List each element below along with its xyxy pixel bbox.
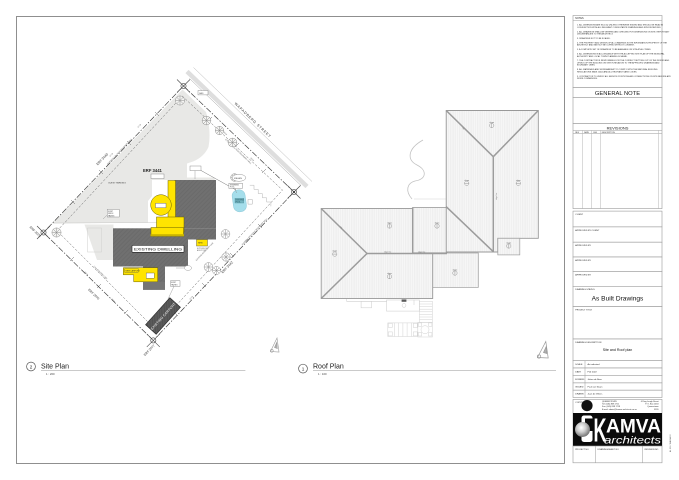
svg-text:DATE: DATE [584, 131, 590, 134]
svg-text:CLIENT: CLIENT [575, 214, 583, 216]
svg-text:Johan de Beer: Johan de Beer [588, 378, 603, 381]
svg-text:APPROVED BY: APPROVED BY [575, 244, 591, 247]
svg-text:As Built Drawings: As Built Drawings [592, 295, 644, 302]
svg-text:POOL: POOL [230, 187, 235, 189]
svg-text:PROJECT TITLE: PROJECT TITLE [575, 310, 592, 312]
svg-text:PAVING: PAVING [108, 214, 115, 217]
svg-text:Juan de Villiers: Juan de Villiers [588, 393, 604, 396]
svg-text:NEW: NEW [198, 243, 203, 245]
svg-text:As indicated: As indicated [588, 363, 601, 366]
svg-text:DISCREPANCIES TO THE ARCHITECT: DISCREPANCIES TO THE ARCHITECT. [577, 33, 614, 36]
svg-text:POOL: POOL [236, 202, 241, 204]
svg-text:SCALE: SCALE [575, 363, 583, 366]
svg-text:APPROVED BY CLIENT: APPROVED BY CLIENT [575, 229, 600, 232]
svg-text:Roof Plan: Roof Plan [313, 363, 344, 370]
svg-text:Feb 2022: Feb 2022 [588, 372, 598, 374]
svg-text:NEW CARPORT: NEW CARPORT [126, 269, 141, 272]
svg-text:GUEST PARKING: GUEST PARKING [108, 182, 126, 185]
svg-text:CONJUNCTION WITH ALL RELEVANT: CONJUNCTION WITH ALL RELEVANT CONSULTANT… [577, 26, 661, 29]
svg-text:1 : 100: 1 : 100 [318, 372, 327, 376]
svg-text:Queenstown: Queenstown [647, 405, 658, 408]
svg-text:ARCHITECT AND MAY NOT BE COPIE: ARCHITECT AND MAY NOT BE COPIED WITHOUT … [577, 44, 635, 47]
svg-text:BOUNDARY LINES.: BOUNDARY LINES. [577, 64, 596, 67]
svg-text:ridge line: ridge line [384, 252, 391, 254]
svg-text:APPROVED BY: APPROVED BY [575, 259, 591, 262]
svg-text:1: 1 [302, 367, 305, 372]
svg-text:REVISIONS: REVISIONS [607, 125, 629, 130]
svg-text:2: 2 [30, 365, 33, 370]
svg-text:PAVING: PAVING [171, 283, 178, 286]
svg-text:Site and Roof plan: Site and Roof plan [603, 348, 633, 352]
svg-text:Paul van Staan: Paul van Staan [588, 385, 604, 388]
svg-text:ERF 3441: ERF 3441 [143, 168, 163, 173]
svg-text:5. A COMPLETE SET OF DRAWINGS: 5. A COMPLETE SET OF DRAWINGS TO BE AVAI… [577, 48, 651, 51]
svg-text:ridge line: ridge line [496, 193, 498, 200]
svg-text:SPA BATH: SPA BATH [234, 177, 243, 180]
svg-text:WORK COMMENCES.: WORK COMMENCES. [577, 78, 598, 80]
svg-text:NOTES: NOTES [575, 17, 584, 20]
svg-text:REVISION NO: REVISION NO [645, 449, 659, 451]
svg-text:DATE: DATE [575, 371, 581, 374]
svg-text:DRAWN: DRAWN [575, 393, 584, 396]
svg-text:ridge line: ridge line [418, 252, 425, 254]
svg-text:architects: architects [604, 435, 662, 447]
svg-text:DRAWING/SHEET NO: DRAWING/SHEET NO [598, 448, 620, 451]
svg-text:E-mail: admin@kamva-architect: E-mail: admin@kamva-architects.co.za [602, 408, 638, 411]
svg-text:AUTHORITY AND LOCAL TOWN PLANN: AUTHORITY AND LOCAL TOWN PLANNING SCHEME… [577, 55, 628, 58]
svg-text:ADDITION: ADDITION [197, 249, 206, 252]
svg-text:RECOMMENDED: RECOMMENDED [575, 379, 584, 381]
svg-text:3. DRAWINGS NOT TO BE SCALED.: 3. DRAWINGS NOT TO BE SCALED. [577, 37, 611, 40]
svg-text:1 : 200: 1 : 200 [46, 372, 55, 376]
svg-text:A1 2017 KAMVA 03: A1 2017 KAMVA 03 [669, 434, 672, 452]
svg-text:Site Plan: Site Plan [41, 363, 69, 370]
svg-text:PROJECT NO: PROJECT NO [575, 449, 589, 451]
svg-text:DRAWING STATUS: DRAWING STATUS [575, 288, 595, 291]
svg-text:APPROVED BY: APPROVED BY [575, 274, 591, 277]
svg-text:ISSUED: ISSUED [575, 386, 584, 388]
svg-text:4 Ring Laugh Street: 4 Ring Laugh Street [641, 400, 659, 403]
svg-text:DESCRIPTION: DESCRIPTION [602, 132, 616, 134]
svg-text:EXISTING DWELLING: EXISTING DWELLING [134, 247, 182, 251]
svg-text:REGULATIONS SANS 10400 AND ALL: REGULATIONS SANS 10400 AND ALL RELEVANT … [577, 70, 638, 73]
svg-text:DRAWING DESCRIPTION: DRAWING DESCRIPTION [575, 341, 601, 344]
svg-text:GENERAL NOTE: GENERAL NOTE [595, 91, 640, 97]
